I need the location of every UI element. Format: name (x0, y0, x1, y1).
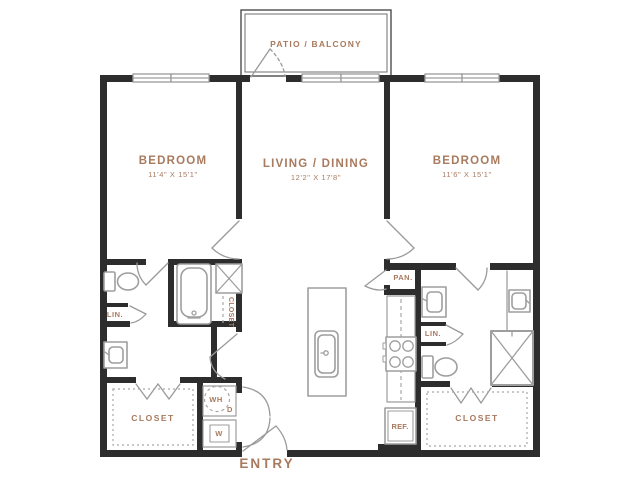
bedroom-left-door (212, 221, 239, 259)
bathroom-left-door (137, 263, 168, 285)
bedroom-left-label: BEDROOM (139, 155, 207, 167)
toilet-left-fixture (104, 272, 139, 291)
pantry-label: PAN. (393, 273, 412, 282)
shower-left-fixture (216, 264, 242, 293)
entry-label: ENTRY (239, 456, 294, 471)
labels: PATIO / BALCONY BEDROOM 11'4" X 15'1" LI… (107, 39, 501, 471)
linen-left-door (130, 306, 146, 323)
living-dining-label: LIVING / DINING (263, 158, 369, 170)
shower-right-fixture (491, 331, 533, 385)
refrigerator-label: REF. (391, 422, 408, 431)
entry-door (243, 426, 287, 451)
closet-bath-label: CLOSET (227, 297, 234, 328)
hall-right-door (387, 221, 414, 259)
bedroom-right-label: BEDROOM (433, 155, 501, 167)
sink-left-fixture (104, 342, 127, 368)
water-heater-label: WH (209, 395, 223, 404)
floor-plan-page: PATIO / BALCONY BEDROOM 11'4" X 15'1" LI… (0, 0, 640, 480)
washer-label: W (215, 429, 223, 438)
closet-right-bifold-door (451, 388, 491, 403)
bathtub-fixture (177, 264, 211, 324)
floor-plan: PATIO / BALCONY BEDROOM 11'4" X 15'1" LI… (0, 0, 640, 480)
bedroom-right-dimensions: 11'6" X 15'1" (442, 170, 492, 179)
closet-right-label: CLOSET (455, 413, 498, 423)
bedroom-right-door (456, 268, 487, 290)
closet-left-label: CLOSET (131, 413, 174, 423)
patio-balcony-label: PATIO / BALCONY (270, 39, 362, 49)
kitchen-island-fixture (308, 288, 346, 396)
linen-right-door (446, 325, 463, 345)
dryer-label: D (227, 405, 233, 414)
laundry-closet-doors (243, 387, 270, 447)
windows (133, 74, 499, 82)
balcony-door (251, 49, 285, 77)
closet-left-bifold-door (136, 384, 180, 399)
sink-right-b-fixture (507, 271, 530, 330)
linen-left-label: LIN. (107, 310, 123, 319)
sink-right-a-fixture (422, 287, 446, 317)
living-dining-dimensions: 12'2" X 17'8" (291, 173, 341, 182)
bedroom-left-dimensions: 11'4" X 15'1" (148, 170, 198, 179)
toilet-right-fixture (422, 356, 457, 378)
linen-right-label: LIN. (425, 329, 441, 338)
stove-fixture (383, 337, 416, 371)
pantry-door (365, 270, 386, 290)
